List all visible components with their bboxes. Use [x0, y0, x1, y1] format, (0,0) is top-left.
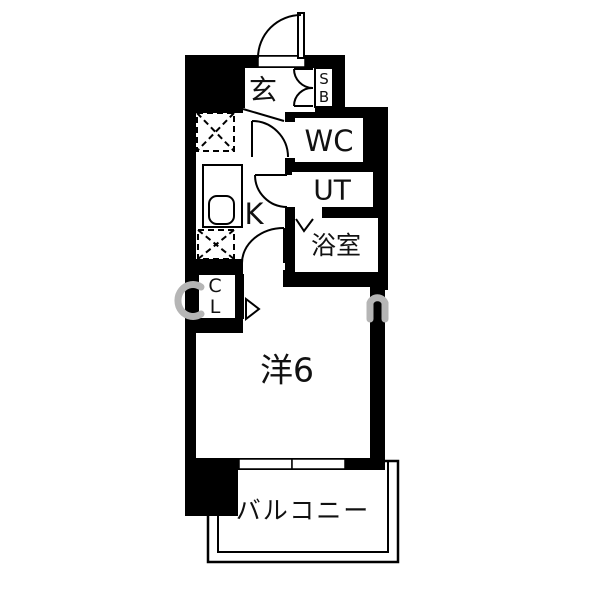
balcony-label: バルコニー [236, 498, 371, 524]
closet-label: C L [208, 276, 221, 318]
kitchen-sink [209, 196, 234, 224]
main-room-label: 洋6 [260, 354, 314, 389]
window [239, 459, 345, 469]
shoebox-label-line2: B [319, 88, 329, 106]
wc-label: WC [305, 126, 354, 156]
floor-plan: 玄 S B WC UT 浴室 K C L 洋6 バルコニー [0, 0, 600, 600]
closet-label-line2: L [208, 297, 221, 318]
closet-label-line1: C [208, 276, 221, 297]
shoebox-label: S B [319, 70, 329, 106]
kitchen-counter [203, 165, 242, 227]
entrance-door [258, 13, 305, 67]
refrigerator-space [197, 113, 234, 151]
washer-space [198, 230, 234, 259]
shoebox-label-line1: S [319, 70, 329, 88]
entrance-label: 玄 [249, 75, 277, 104]
utility-label: UT [313, 175, 351, 204]
bathroom-label: 浴室 [311, 233, 361, 259]
kitchen-label: K [244, 199, 263, 229]
